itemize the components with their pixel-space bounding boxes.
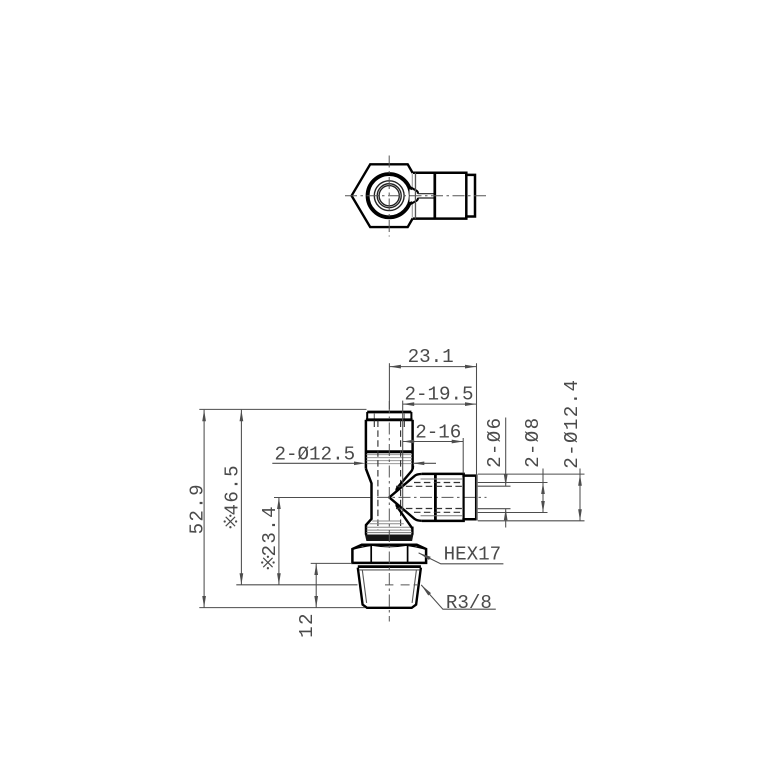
svg-text:HEX17: HEX17: [444, 544, 502, 566]
svg-text:12: 12: [296, 612, 318, 638]
svg-text:R3/8: R3/8: [446, 592, 492, 614]
svg-text:23.1: 23.1: [408, 346, 454, 368]
svg-text:52.9: 52.9: [187, 483, 209, 534]
svg-text:2-Ø12.5: 2-Ø12.5: [275, 444, 356, 466]
svg-text:2-Ø8: 2-Ø8: [522, 416, 544, 467]
svg-text:2-Ø12.4: 2-Ø12.4: [561, 379, 583, 469]
svg-text:2-Ø6: 2-Ø6: [484, 416, 506, 467]
svg-text:2-19.5: 2-19.5: [404, 384, 473, 406]
svg-text:46.5: 46.5: [221, 464, 243, 515]
svg-text:23.4: 23.4: [259, 505, 281, 556]
svg-text:2-16: 2-16: [415, 422, 461, 444]
